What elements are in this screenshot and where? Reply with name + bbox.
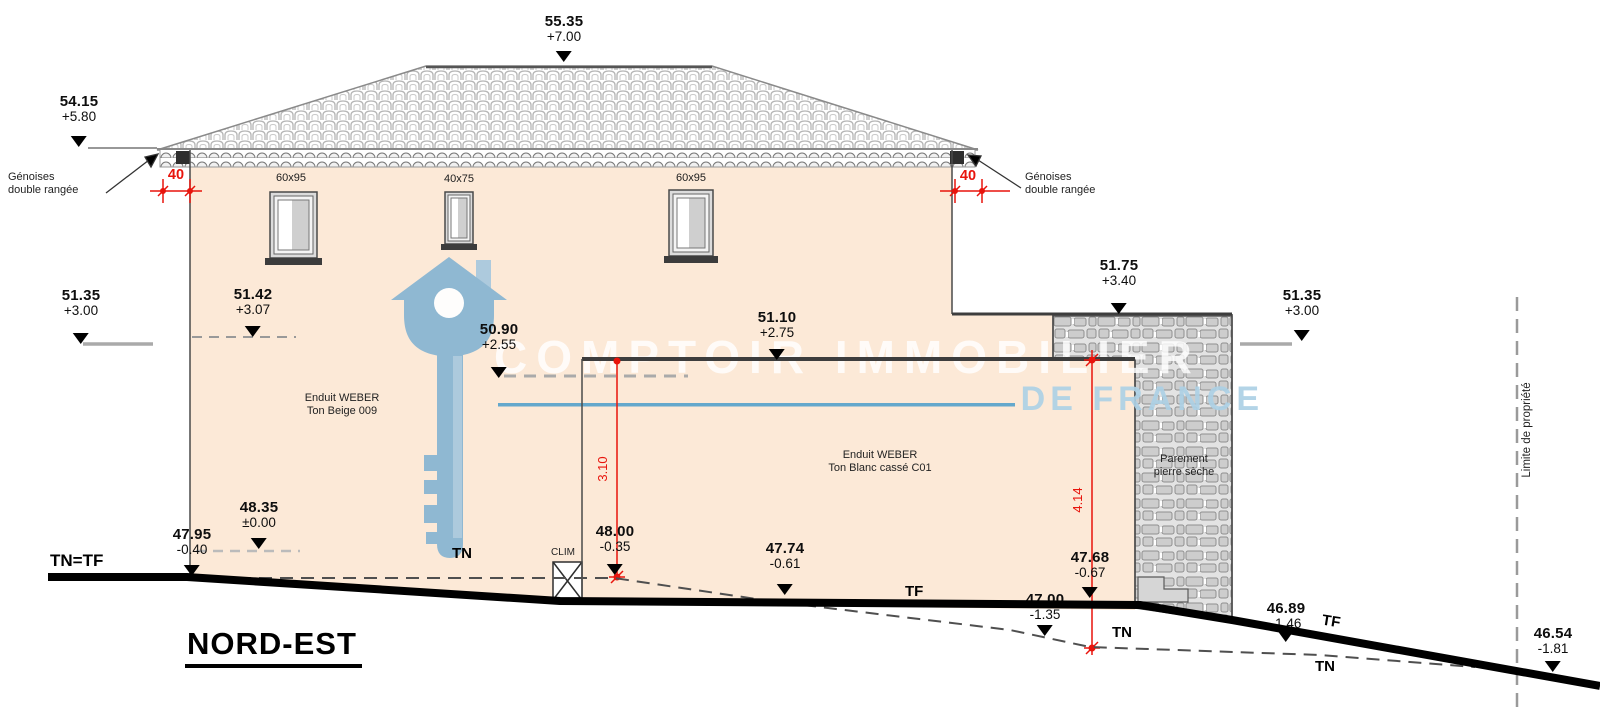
level-marker-ext-top: 51.10+2.75 xyxy=(758,310,797,360)
enduit-beige-note: Enduit WEBER Ton Beige 009 xyxy=(305,392,380,418)
level-marker-ground-right: 47.68-0.67 xyxy=(1071,550,1110,598)
overhang-dim-right: 40 xyxy=(960,168,976,184)
clim-label: CLIM xyxy=(551,546,575,559)
level-marker-right-upper: 51.35+3.00 xyxy=(1283,288,1322,341)
window-3-size-label: 60x95 xyxy=(676,172,706,184)
window-1-size-label: 60x95 xyxy=(276,172,306,184)
level-marker-floor-zero: 48.35±0.00 xyxy=(240,500,279,549)
genoises-note-left: Génoises double rangée xyxy=(8,171,78,197)
tn-label-far-right: TN xyxy=(1315,658,1335,675)
level-marker-ground-left: 47.95-0.40 xyxy=(173,527,212,576)
level-marker-ground-clim: 48.00-0.35 xyxy=(596,524,635,575)
right-height-dim: 4.14 xyxy=(1070,475,1086,525)
level-marker-wall-left: 51.42+3.07 xyxy=(234,287,273,337)
parement-note: Parement pierre sèche xyxy=(1154,453,1215,479)
tf-label-mid: TF xyxy=(905,583,923,600)
elevation-drawing-nord-est: COMPTOIR IMMOBILIER DE FRANCE 47.00 -1.3… xyxy=(0,0,1600,714)
level-marker-ridge: 55.35+7.00 xyxy=(545,14,584,62)
elevation-title: NORD-EST xyxy=(185,626,362,668)
property-limit-label: Limite de propriété xyxy=(1521,355,1537,505)
tn-label-mid: TN xyxy=(452,545,472,562)
genoises-note-right: Génoises double rangée xyxy=(1025,171,1095,197)
window-2-size-label: 40x75 xyxy=(444,173,474,185)
level-marker-ground-mid: 47.74-0.61 xyxy=(766,541,805,595)
tf-label-right: TF xyxy=(1321,612,1342,632)
enduit-blanc-note: Enduit WEBER Ton Blanc cassé C01 xyxy=(828,449,931,475)
level-marker-ext-left-top: 50.90+2.55 xyxy=(480,322,519,378)
level-marker-eaves-left: 54.15+5.80 xyxy=(60,94,99,147)
level-marker-left-upper: 51.35+3.00 xyxy=(62,288,101,344)
tn-label-right: TN xyxy=(1112,624,1132,641)
overhang-dim-left: 40 xyxy=(168,167,184,183)
tn-tf-label: TN=TF xyxy=(50,551,103,571)
level-marker-tn-far-right: 46.54-1.81 xyxy=(1534,626,1573,672)
ext-height-dim: 3.10 xyxy=(595,444,611,494)
level-marker-stone-top: 51.75+3.40 xyxy=(1100,258,1139,314)
